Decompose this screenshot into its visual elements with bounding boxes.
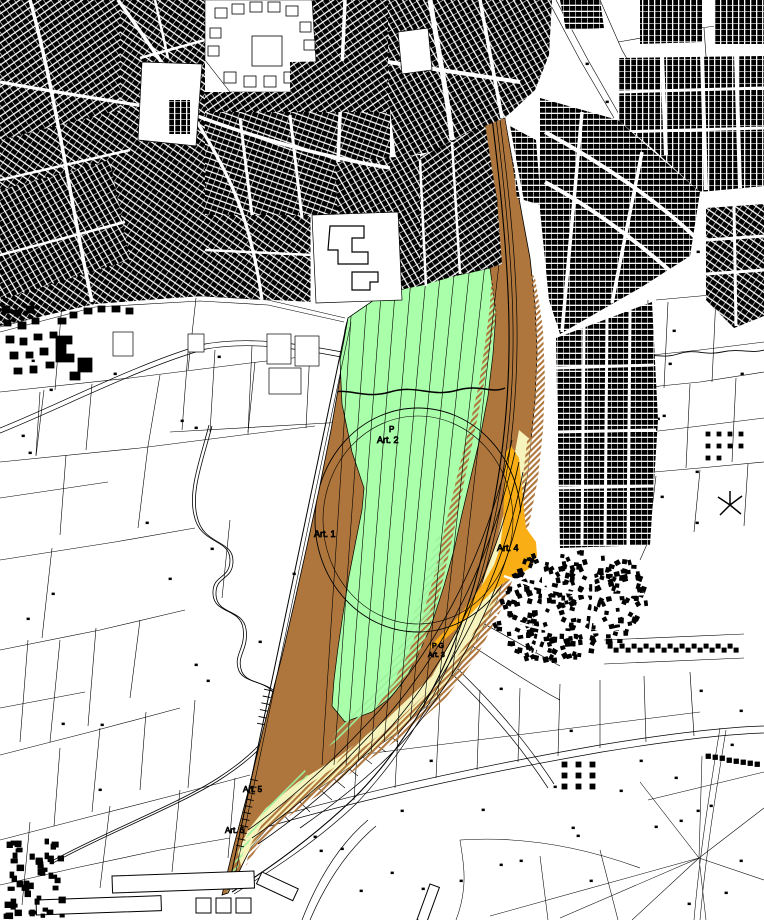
svg-text:P G: P G bbox=[432, 643, 444, 650]
svg-text:Art. 1: Art. 1 bbox=[314, 529, 336, 539]
svg-text:Art. 3: Art. 3 bbox=[428, 652, 445, 659]
svg-text:Art. 5: Art. 5 bbox=[243, 785, 263, 794]
svg-text:Art. 4: Art. 4 bbox=[497, 543, 519, 553]
svg-text:Art. 6: Art. 6 bbox=[225, 826, 245, 835]
svg-text:P: P bbox=[389, 425, 394, 434]
svg-text:Art. 2: Art. 2 bbox=[377, 435, 399, 445]
